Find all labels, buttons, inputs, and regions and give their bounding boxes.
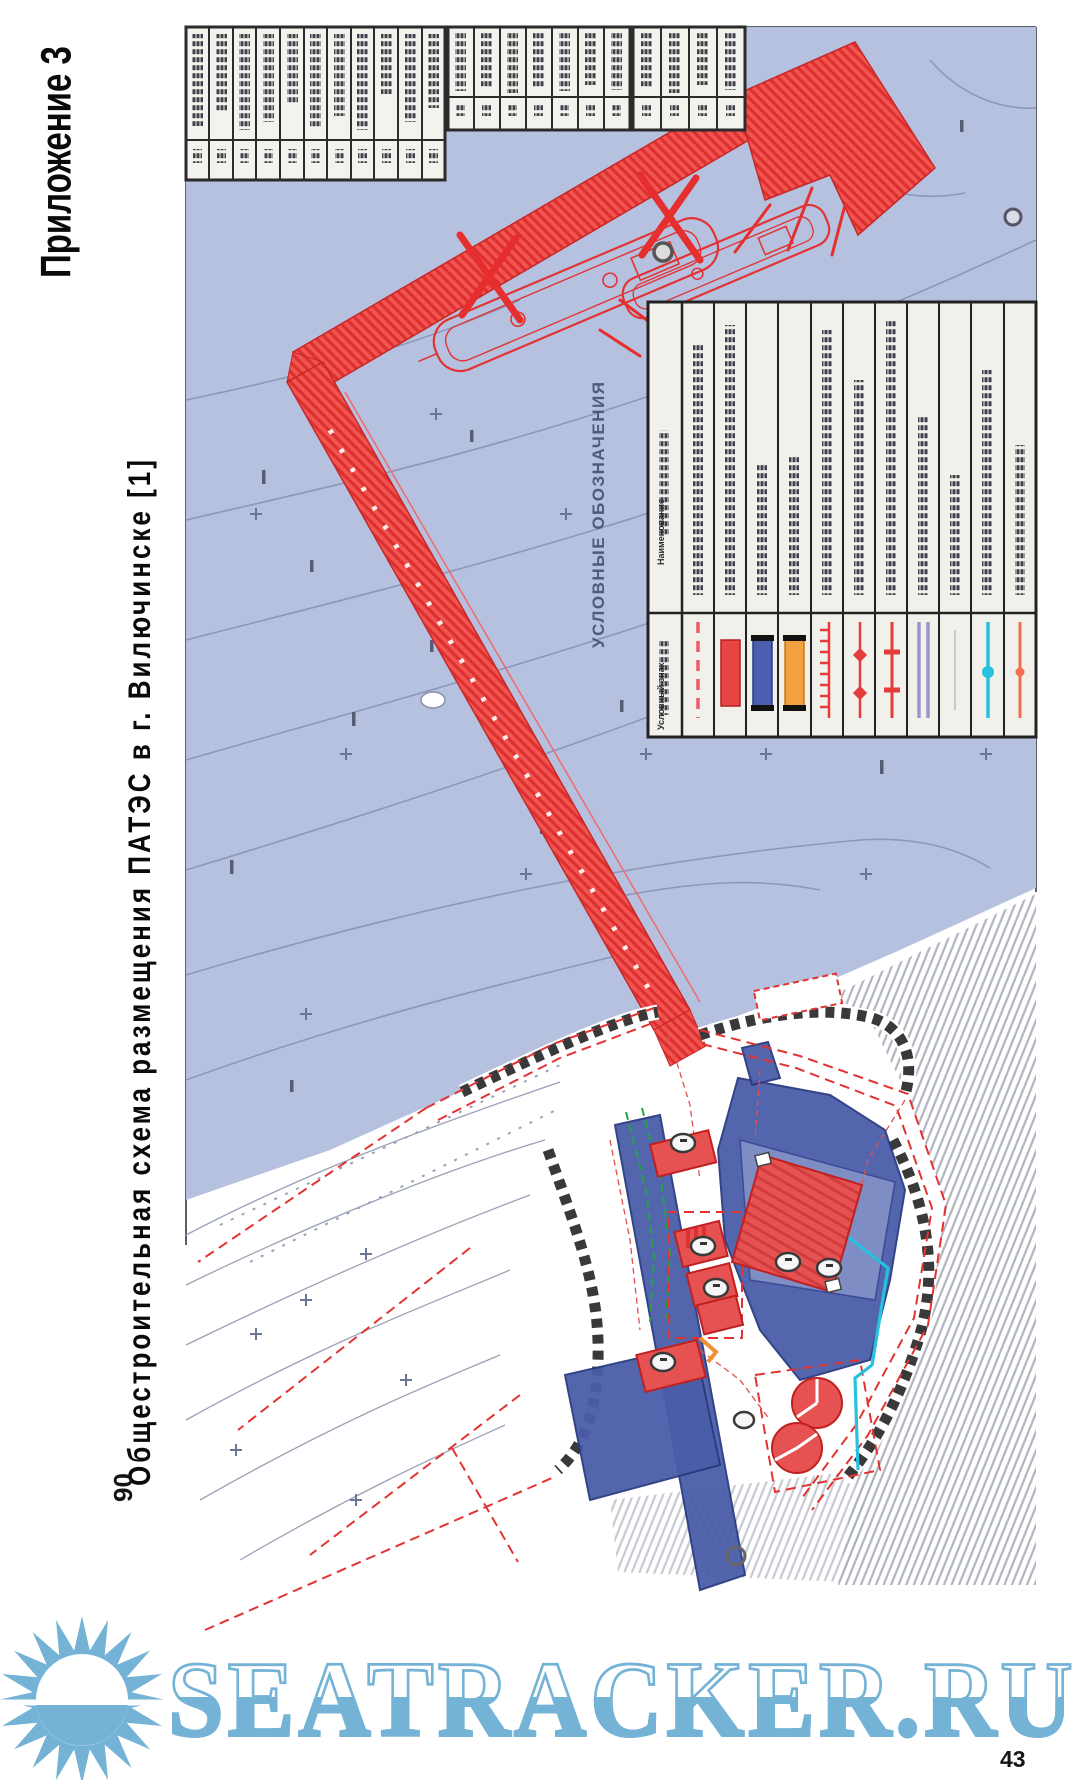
page-number: 43 [1000,1746,1026,1773]
legend-header-name: Наименование [656,499,666,565]
site-plan-drawing [0,0,1080,1780]
schedule-table-c [633,27,745,130]
appendix-label: Приложение 3 [32,46,81,278]
sun-logo [0,1616,170,1780]
blue-solid-rect [751,635,774,711]
orange-solid-rect [783,635,806,711]
legend-box [648,302,1036,737]
schedule-table-a [186,27,445,180]
schedule-table-b [448,27,630,130]
legend-header-symbol: Условный знак [656,663,666,730]
contour-elevation-label: 90 [108,1473,139,1502]
legend-title: УСЛОВНЫЕ ОБОЗНАЧЕНИЯ [589,381,609,648]
fuel-tanks [772,1378,842,1473]
watermark-text: SEATRACKER.RU [168,1646,1077,1754]
red-solid-rect [721,640,740,706]
page-title: Общестроительная схема размещения ПАТЭС … [121,457,158,1486]
